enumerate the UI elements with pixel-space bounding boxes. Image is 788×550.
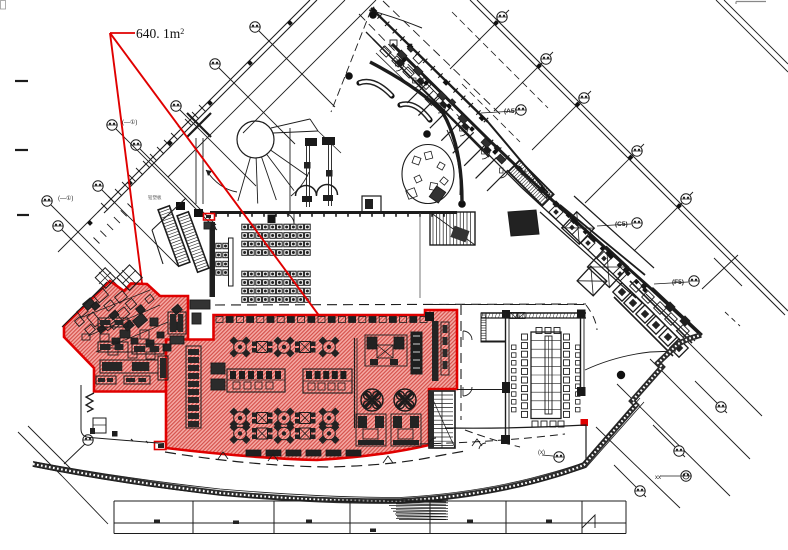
svg-text:640. 1m2: 640. 1m2 <box>136 26 184 41</box>
svg-text:(—①): (—①) <box>58 195 73 202</box>
svg-text:(F5): (F5) <box>672 279 684 286</box>
svg-text:(C5): (C5) <box>615 221 628 228</box>
svg-text:(A5): (A5) <box>504 108 517 115</box>
svg-text:(—①): (—①) <box>122 119 137 126</box>
svg-text:铅塑板: 铅塑板 <box>148 194 162 201</box>
svg-text:xx: xx <box>655 475 661 481</box>
svg-text:(x): (x) <box>538 450 545 456</box>
